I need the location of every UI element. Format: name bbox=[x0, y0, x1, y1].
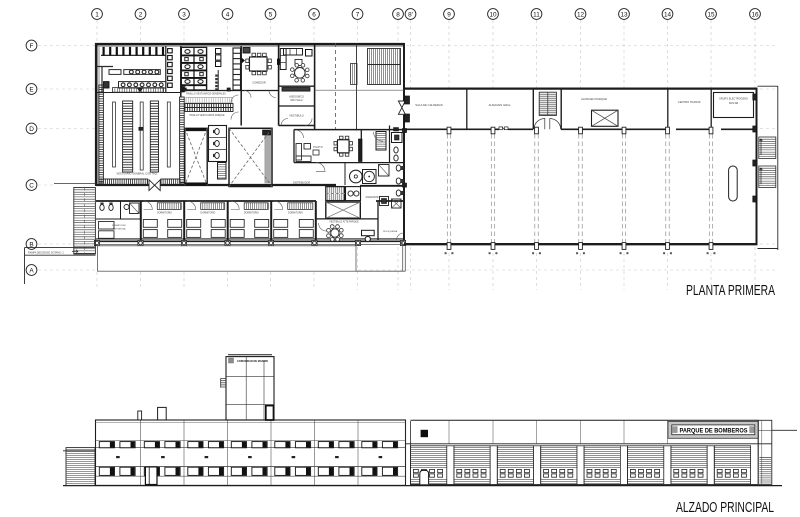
svg-text:RAMPA DESCENSO SOTANO -1: RAMPA DESCENSO SOTANO -1 bbox=[28, 251, 64, 254]
svg-text:9: 9 bbox=[447, 11, 451, 18]
svg-text:14: 14 bbox=[664, 11, 672, 18]
svg-text:SALA DE CALDERAS: SALA DE CALDERAS bbox=[415, 103, 443, 107]
svg-text:ASISTENCIA: ASISTENCIA bbox=[112, 228, 126, 231]
svg-text:ALMACEN PARQUE: ALMACEN PARQUE bbox=[581, 97, 607, 101]
svg-text:13: 13 bbox=[620, 11, 628, 18]
svg-text:WIFI SALA: WIFI SALA bbox=[290, 99, 303, 102]
svg-text:A: A bbox=[29, 267, 34, 274]
svg-text:ALZADO PRINCIPAL: ALZADO PRINCIPAL bbox=[676, 499, 774, 516]
svg-text:COMEDOR: COMEDOR bbox=[252, 81, 266, 85]
svg-text:ASCENSOR: ASCENSOR bbox=[366, 196, 379, 199]
svg-text:DORMITORIO: DORMITORIO bbox=[112, 225, 126, 227]
svg-text:5: 5 bbox=[269, 11, 273, 18]
svg-text:D: D bbox=[29, 126, 34, 133]
svg-text:16: 16 bbox=[751, 11, 759, 18]
svg-text:F: F bbox=[30, 43, 34, 50]
svg-text:E: E bbox=[29, 86, 33, 93]
svg-text:DORMITORIO: DORMITORIO bbox=[288, 213, 303, 215]
svg-text:PASILLO VESTUARIOS GENERALES: PASILLO VESTUARIOS GENERALES bbox=[186, 93, 226, 96]
svg-text:12: 12 bbox=[577, 11, 585, 18]
svg-text:3: 3 bbox=[182, 11, 186, 18]
svg-text:DISTRIBUIDOR: DISTRIBUIDOR bbox=[293, 182, 310, 185]
svg-text:PASILLO VESTUARIOS PARQUE: PASILLO VESTUARIOS PARQUE bbox=[189, 114, 224, 117]
svg-text:DORMITORIO: DORMITORIO bbox=[200, 213, 215, 215]
svg-text:10: 10 bbox=[489, 11, 497, 18]
svg-text:VESTIBULO AYTE PARQUE: VESTIBULO AYTE PARQUE bbox=[329, 221, 359, 224]
svg-text:ALMACEN GRAL.: ALMACEN GRAL. bbox=[489, 103, 512, 107]
svg-text:GRUPO ELECTROGENO: GRUPO ELECTROGENO bbox=[719, 98, 748, 101]
svg-text:DORMITORIO: DORMITORIO bbox=[244, 213, 259, 215]
svg-text:PARQUE DE BOMBEROS: PARQUE DE BOMBEROS bbox=[680, 429, 748, 435]
svg-text:PILOTO: PILOTO bbox=[313, 145, 322, 149]
svg-text:PLANTA PRIMERA: PLANTA PRIMERA bbox=[686, 282, 776, 299]
svg-text:CENTRO TRANSF.: CENTRO TRANSF. bbox=[678, 100, 701, 104]
svg-text:11: 11 bbox=[533, 11, 540, 18]
svg-text:6: 6 bbox=[312, 11, 316, 18]
svg-text:8': 8' bbox=[408, 11, 413, 18]
svg-text:DORMITORIO: DORMITORIO bbox=[157, 213, 172, 215]
svg-text:SUM AB: SUM AB bbox=[729, 102, 739, 105]
svg-text:2: 2 bbox=[139, 11, 143, 18]
svg-text:PELUQUERIA: PELUQUERIA bbox=[383, 230, 398, 233]
svg-text:1: 1 bbox=[95, 11, 99, 18]
svg-text:15: 15 bbox=[707, 11, 715, 18]
svg-text:VESTIBULO: VESTIBULO bbox=[289, 114, 304, 118]
svg-text:VESTUARIO GENERAL CON TAQ.: VESTUARIO GENERAL CON TAQ. bbox=[116, 172, 157, 176]
svg-text:8: 8 bbox=[396, 11, 400, 18]
svg-text:4: 4 bbox=[226, 11, 230, 18]
svg-text:C: C bbox=[29, 182, 34, 189]
svg-text:COMUNIDAD DE MADRID: COMUNIDAD DE MADRID bbox=[237, 359, 269, 363]
svg-text:7: 7 bbox=[356, 11, 360, 18]
